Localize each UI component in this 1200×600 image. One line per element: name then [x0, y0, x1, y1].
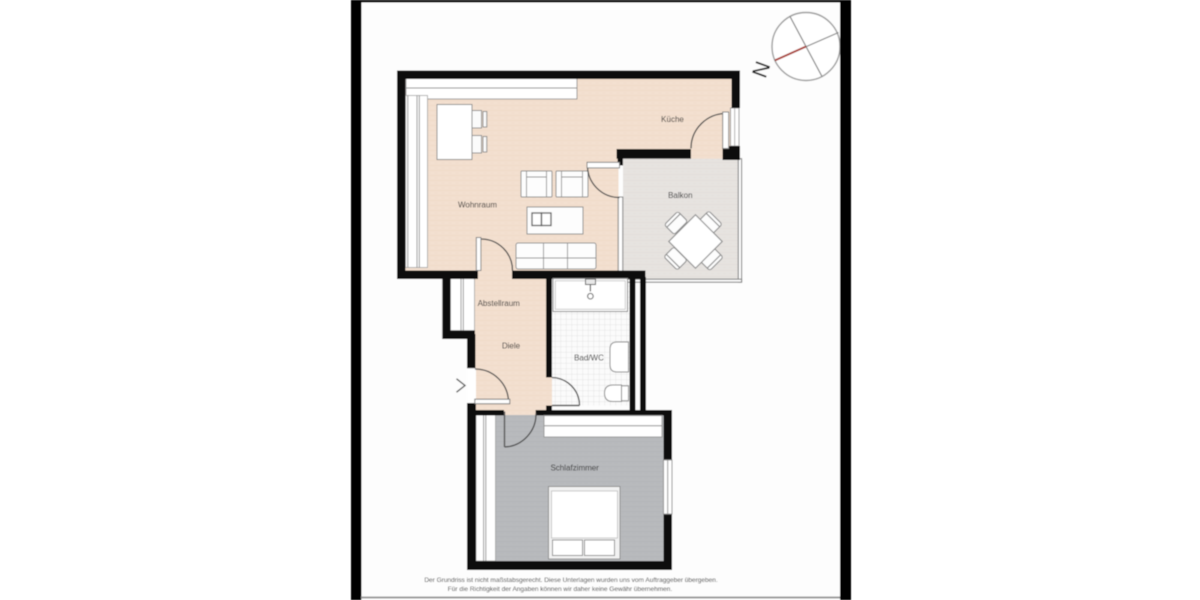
svg-text:Für die Richtigkeit der Angabe: Für die Richtigkeit der Angaben können w… [448, 586, 673, 593]
svg-text:Küche: Küche [661, 115, 684, 124]
svg-text:Diele: Diele [502, 342, 521, 351]
svg-text:Balkon: Balkon [668, 191, 692, 200]
svg-text:Abstellraum: Abstellraum [478, 299, 521, 308]
svg-text:Der Grundriss ist nicht maßsta: Der Grundriss ist nicht maßstabsgerecht.… [424, 577, 718, 584]
svg-text:Bad/WC: Bad/WC [574, 354, 604, 363]
svg-text:Wohnraum: Wohnraum [458, 201, 497, 210]
svg-text:Schlafzimmer: Schlafzimmer [550, 463, 599, 472]
